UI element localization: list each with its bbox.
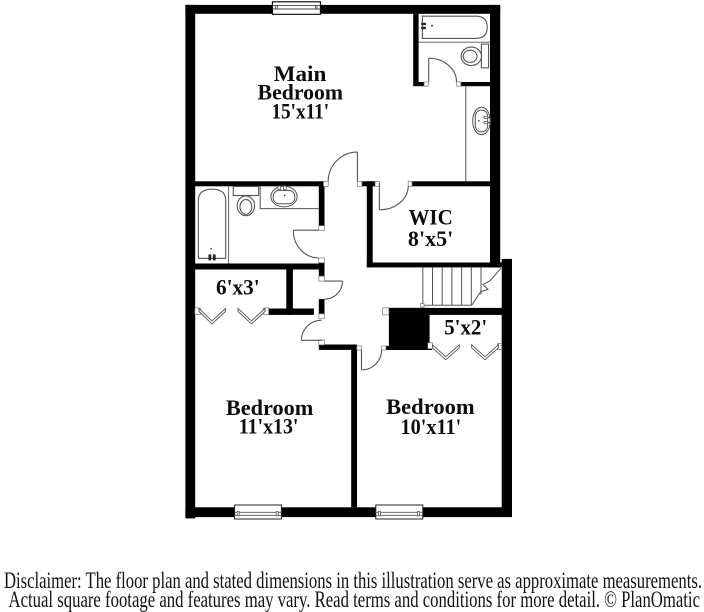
- svg-text:10'x11': 10'x11': [401, 414, 462, 439]
- svg-text:15'x11': 15'x11': [271, 99, 329, 124]
- svg-text:6'x3': 6'x3': [216, 274, 260, 299]
- svg-text:5'x2': 5'x2': [444, 315, 487, 340]
- svg-text:Actual square footage and feat: Actual square footage and features may v…: [9, 587, 701, 612]
- svg-text:11'x13': 11'x13': [239, 414, 299, 439]
- svg-text:8'x5': 8'x5': [408, 226, 453, 251]
